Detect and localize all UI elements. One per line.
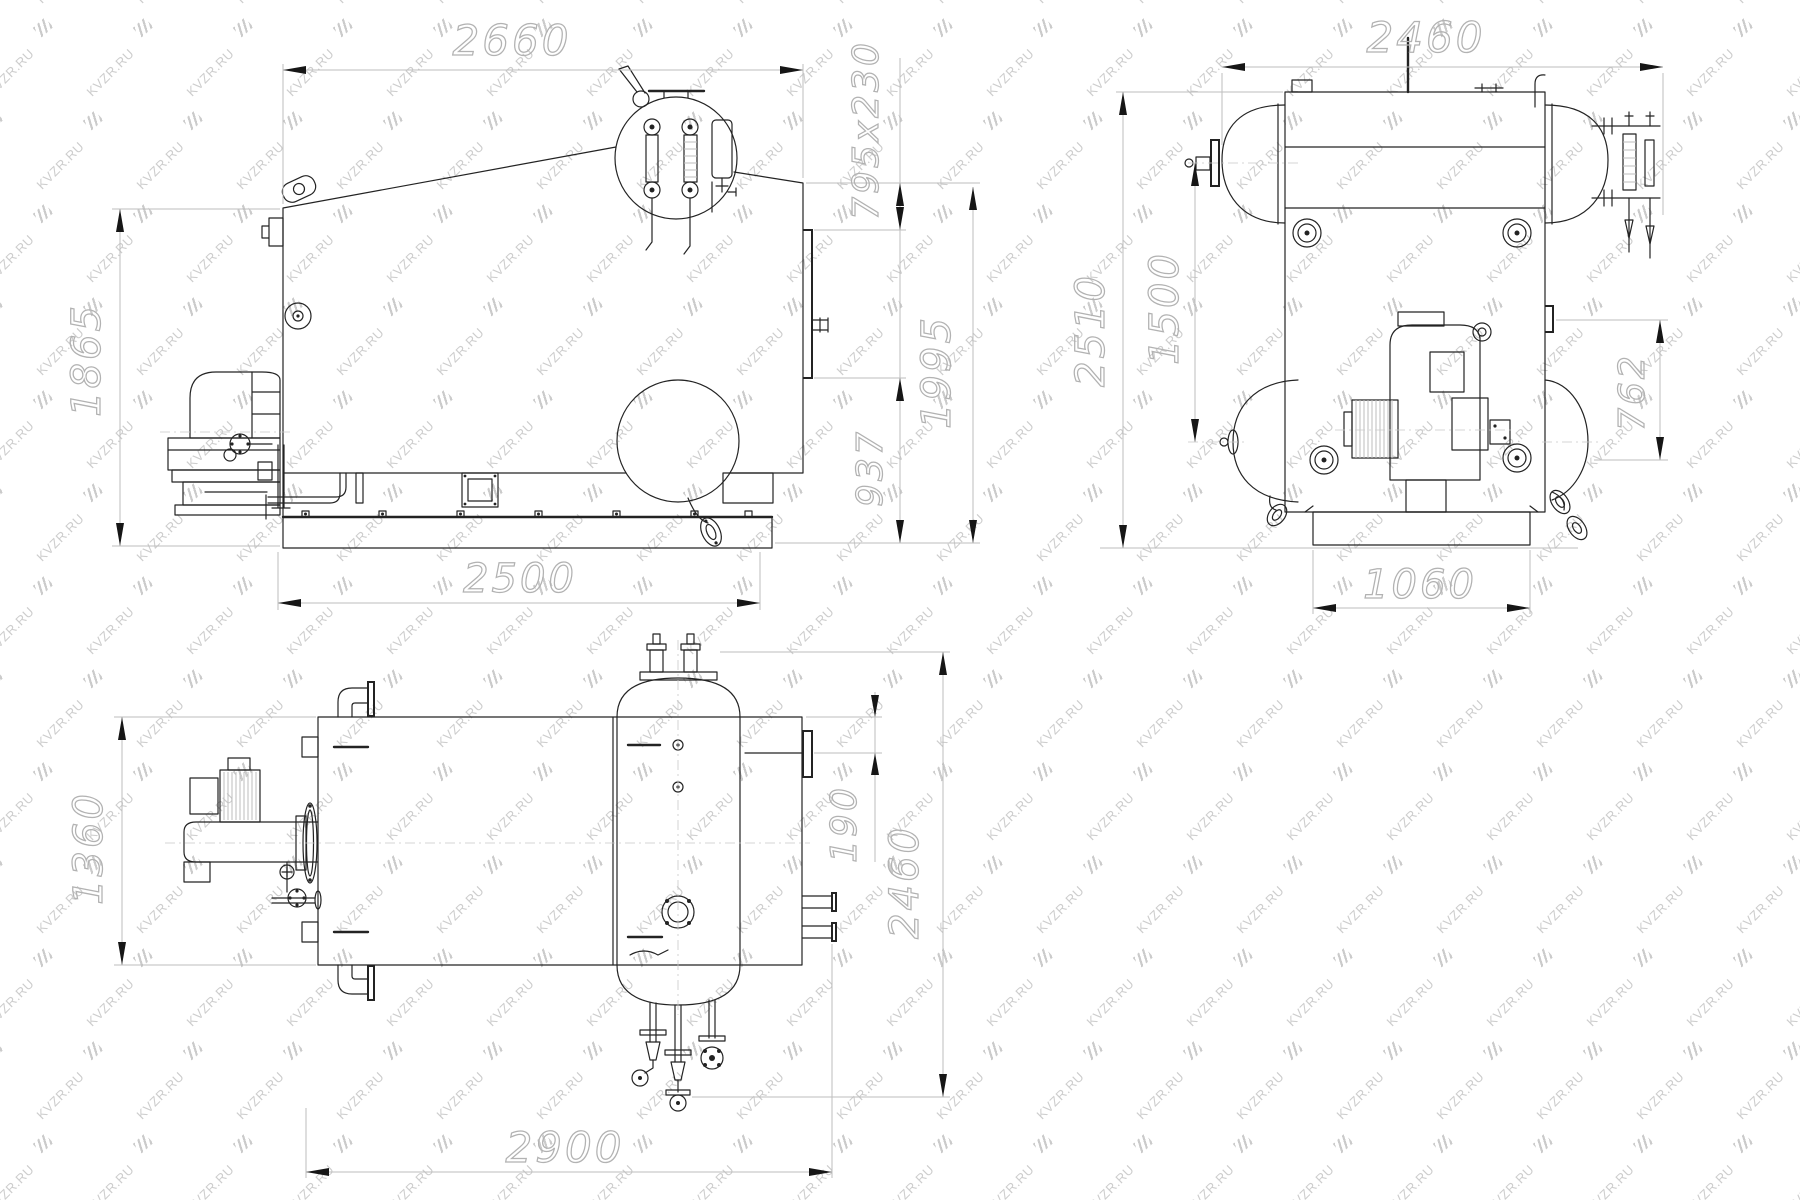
side-lower-drum [617,380,739,549]
dimension-label-side-base-width: 2500 [463,556,577,602]
technical-drawing: 2660 1865 2500 795x230 1995 937 [0,0,1800,1200]
top-body [302,682,836,1000]
dimension-label-front-drum-centers: 1500 [1142,251,1188,365]
dimension-label-side-lower-rear-height: 937 [850,429,891,507]
dimension-label-top-overall-length: 2900 [506,1123,625,1172]
front-view: 2460 2510 1500 762 1060 [1068,13,1668,614]
dimension-label-front-overall-width: 2460 [1367,13,1486,62]
dimension-label-top-body-width: 1360 [66,791,112,905]
dimension-label-front-overall-height: 2510 [1068,273,1114,387]
dimension-label-side-overall-height: 1865 [64,303,110,417]
front-manholes [1293,219,1531,474]
front-lower-drum-heads [1220,380,1591,543]
front-water-gauge [1592,112,1660,258]
side-burner [168,372,290,515]
dimension-label-top-flange-offset: 190 [824,785,865,863]
top-burner [184,758,321,909]
top-view: 1360 2900 190 2460 [66,634,950,1178]
side-view: 2660 1865 2500 795x230 1995 937 [64,16,980,610]
lifting-lug [279,173,318,205]
dimension-label-side-overall-width: 2660 [453,16,572,65]
dimension-label-front-lower-drum-height: 762 [1612,353,1653,431]
side-hatch [462,473,498,507]
dimension-label-side-rear-height: 1995 [914,315,960,429]
dimension-label-front-base-width: 1060 [1363,562,1477,608]
side-dimensions: 2660 1865 2500 795x230 1995 937 [64,16,980,610]
front-burner [1344,312,1510,512]
top-safety-valves [640,634,717,680]
dimension-label-side-flue-size: 795x230 [846,40,887,220]
side-upper-drum [615,66,737,254]
side-body [262,147,828,517]
top-drain-valves [632,1000,725,1111]
top-drum [617,678,740,1005]
dimension-label-top-overall-width: 2460 [882,825,928,939]
top-dimensions: 1360 2900 190 2460 [66,652,950,1178]
drawing-canvas: KVZR.RUKVZR.RUKVZR.RUKVZR.RUKVZR.RUKVZR.… [0,0,1800,1200]
